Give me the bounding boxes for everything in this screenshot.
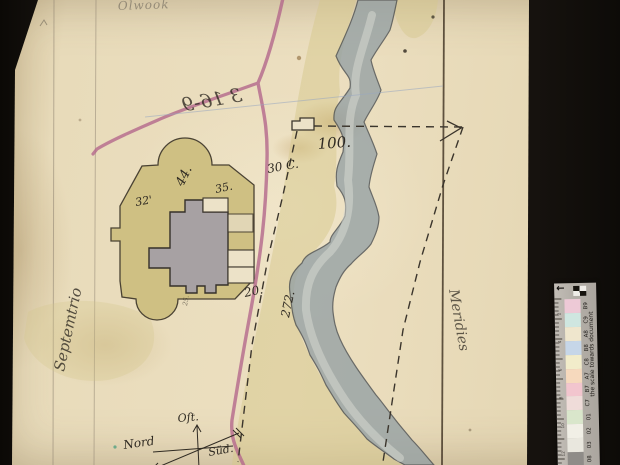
ruler-number: 12 <box>561 451 566 456</box>
color-patch <box>567 410 583 424</box>
color-patch <box>565 327 581 341</box>
color-patch <box>566 369 582 383</box>
color-patch <box>565 313 581 327</box>
color-patch <box>568 452 584 465</box>
calibration-caption: the scale towards document <box>589 397 598 403</box>
color-patch <box>566 355 582 369</box>
patch-label: 02 <box>586 427 592 434</box>
color-patch <box>567 438 583 452</box>
scanned-document-frame: 3 16-9 100. 44. 35. 32' 30 C. 20. 272. 2… <box>0 0 620 465</box>
ruler-number: 6 <box>558 369 563 372</box>
checker-patch-icon <box>573 286 586 296</box>
patch-label: 03 <box>586 441 592 448</box>
ruler-number: 10 <box>560 423 565 428</box>
color-patch <box>566 382 582 396</box>
color-patch <box>564 299 580 313</box>
color-calibration-bar: ← 2 4 6 8 10 12 B9 C9 A8 B8 C8 <box>554 283 600 465</box>
patch-label: 08 <box>587 455 593 462</box>
calibration-caption-text: the scale towards document <box>589 388 596 397</box>
patch-label: B9 <box>583 302 589 309</box>
color-patch <box>565 341 581 355</box>
map-sheet <box>0 0 620 465</box>
color-patch <box>566 396 582 410</box>
ruler-number: 4 <box>557 341 562 344</box>
ruler-number: 2 <box>556 313 561 316</box>
color-patch <box>567 424 583 438</box>
ruler-number: 8 <box>558 397 563 400</box>
registration-arrow-icon: ← <box>556 283 565 294</box>
patch-label: 01 <box>586 414 592 421</box>
